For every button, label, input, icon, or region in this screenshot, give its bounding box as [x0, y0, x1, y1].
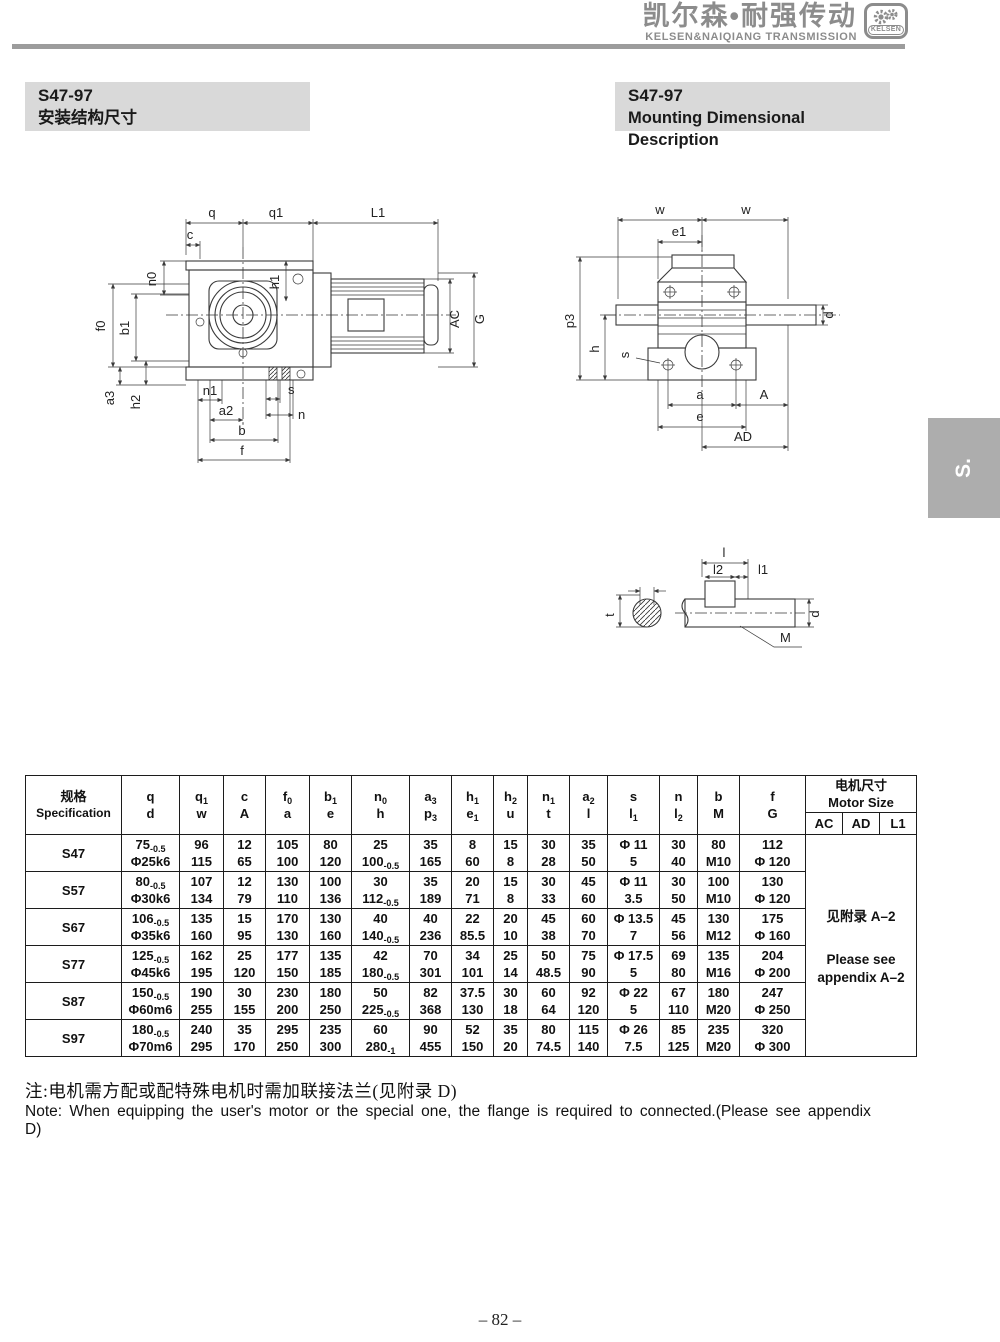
- cell-line: 125: [660, 1038, 697, 1055]
- cell-line: 130: [452, 1001, 493, 1018]
- cell-line: 150-0.5: [122, 984, 179, 1001]
- dim-label-a3: a3: [102, 391, 117, 405]
- column-header: n0h: [352, 776, 410, 835]
- cell-line: 150: [452, 1038, 493, 1055]
- cell-line: 35: [410, 836, 451, 853]
- cell-line: Φ 13.5: [608, 910, 659, 927]
- value-cell: 70301: [410, 946, 452, 983]
- value-cell: 295250: [266, 1020, 310, 1057]
- value-cell: 25100-0.5: [352, 835, 410, 872]
- cell-line: 60: [528, 984, 569, 1001]
- value-cell: 320Φ 300: [740, 1020, 806, 1057]
- cell-line: 50: [570, 853, 607, 870]
- cell-line: 35: [494, 1021, 527, 1038]
- cell-line: 115: [570, 1021, 607, 1038]
- value-cell: 105100: [266, 835, 310, 872]
- dim-label-l1: l1: [758, 562, 768, 577]
- cell-line: 92: [570, 984, 607, 1001]
- cell-line: 75: [570, 947, 607, 964]
- cell-line: 20: [452, 873, 493, 890]
- gear-train-icon: [869, 8, 903, 25]
- cell-line: 180-0.5: [352, 964, 409, 981]
- cell-line: 130: [266, 873, 309, 890]
- column-header: q1w: [180, 776, 224, 835]
- dim-label-d: d: [821, 311, 836, 318]
- dimension-table: 规格Specificationqdq1wcAf0ab1en0ha3p3h1e1h…: [25, 775, 917, 1057]
- cell-line: 95: [224, 927, 265, 944]
- cell-line: q: [122, 788, 179, 805]
- cell-line: 12: [224, 873, 265, 890]
- value-cell: 3550: [570, 835, 608, 872]
- note-cn: 注:电机需方配或配特殊电机时需加联接法兰(见附录 D): [25, 1078, 457, 1103]
- value-cell: 170130: [266, 909, 310, 946]
- cell-line: t: [528, 805, 569, 822]
- cell-line: Specification: [26, 805, 121, 822]
- value-cell: Φ 225: [608, 983, 660, 1020]
- value-cell: 247Φ 250: [740, 983, 806, 1020]
- dim-label-n0: n0: [144, 272, 159, 286]
- cell-line: 42: [352, 947, 409, 964]
- column-header: bM: [698, 776, 740, 835]
- cell-line: 70: [410, 947, 451, 964]
- dim-label-q: q: [208, 205, 215, 220]
- cell-line: M10: [698, 890, 739, 907]
- front-view-drawing: q q1 L1 c n0 h1 f0 b1 a3 h2 n1 a2 s n b …: [90, 195, 490, 485]
- motor-note-en: Please see appendix A–2: [815, 951, 907, 987]
- cell-line: f0: [266, 788, 309, 805]
- cell-line: Φ 160: [740, 927, 805, 944]
- value-cell: Φ 115: [608, 835, 660, 872]
- title-block-en: S47-97 Mounting Dimensional Description: [615, 82, 890, 131]
- cell-line: 33: [528, 890, 569, 907]
- value-cell: 180-0.5Φ70m6: [122, 1020, 180, 1057]
- value-cell: 34101: [452, 946, 494, 983]
- value-cell: 1279: [224, 872, 266, 909]
- dim-label-h: h: [587, 345, 602, 352]
- section-index-label: S.: [952, 458, 976, 478]
- value-cell: 35165: [410, 835, 452, 872]
- cell-line: Φ45k6: [122, 964, 179, 981]
- value-cell: 2285.5: [452, 909, 494, 946]
- cell-line: a: [266, 805, 309, 822]
- dim-label-p3: p3: [562, 314, 577, 328]
- cell-line: 112-0.5: [352, 890, 409, 907]
- cell-line: 30: [528, 873, 569, 890]
- cell-line: 162: [180, 947, 223, 964]
- cell-line: 80: [528, 1021, 569, 1038]
- cell-line: 100: [266, 853, 309, 870]
- cell-line: p3: [410, 805, 451, 822]
- cell-line: h: [352, 805, 409, 822]
- cell-line: 50: [352, 984, 409, 1001]
- value-cell: Φ 13.57: [608, 909, 660, 946]
- value-cell: 190255: [180, 983, 224, 1020]
- value-cell: 3040: [660, 835, 698, 872]
- cell-line: 136: [310, 890, 351, 907]
- column-header: n1t: [528, 776, 570, 835]
- value-cell: 100M10: [698, 872, 740, 909]
- cell-line: 64: [528, 1001, 569, 1018]
- value-cell: 130M12: [698, 909, 740, 946]
- column-header: qd: [122, 776, 180, 835]
- cell-line: 295: [266, 1021, 309, 1038]
- cell-line: 100: [698, 873, 739, 890]
- value-cell: 130110: [266, 872, 310, 909]
- cell-line: 15: [494, 873, 527, 890]
- cell-line: Φ 22: [608, 984, 659, 1001]
- cell-line: 135: [698, 947, 739, 964]
- cell-line: 250: [266, 1038, 309, 1055]
- cell-line: 180-0.5: [122, 1021, 179, 1038]
- cell-line: 160: [310, 927, 351, 944]
- column-header: a2l: [570, 776, 608, 835]
- dim-label-AD: AD: [734, 429, 752, 444]
- cell-line: 8: [452, 836, 493, 853]
- cell-line: 236: [410, 927, 451, 944]
- cell-line: 189: [410, 890, 451, 907]
- motor-note-cn: 见附录 A–2: [806, 905, 916, 925]
- cell-line: 71: [452, 890, 493, 907]
- motor-size-note-cell: 见附录 A–2Please see appendix A–2: [806, 835, 917, 1057]
- value-cell: 3520: [494, 1020, 528, 1057]
- value-cell: 107134: [180, 872, 224, 909]
- dim-label-l2: l2: [713, 562, 723, 577]
- dim-label-M: M: [780, 630, 791, 645]
- housing-outline: [616, 255, 816, 380]
- dim-label-d: d: [807, 610, 822, 617]
- value-cell: 1595: [224, 909, 266, 946]
- dim-label-b1: b1: [117, 321, 132, 335]
- cell-line: 8: [494, 890, 527, 907]
- cell-line: 320: [740, 1021, 805, 1038]
- cell-line: 28: [528, 853, 569, 870]
- cell-line: 5: [608, 1001, 659, 1018]
- cell-line: 368: [410, 1001, 451, 1018]
- cell-line: 70: [570, 927, 607, 944]
- column-header: fG: [740, 776, 806, 835]
- value-cell: 7590: [570, 946, 608, 983]
- cell-line: Φ 300: [740, 1038, 805, 1055]
- value-cell: 180M20: [698, 983, 740, 1020]
- cell-line: 130: [740, 873, 805, 890]
- cell-line: 25: [352, 836, 409, 853]
- value-cell: 240295: [180, 1020, 224, 1057]
- brand-name-cn: 凯尔森•耐强传动: [643, 3, 857, 30]
- cell-line: 130: [698, 910, 739, 927]
- dim-label-w-right: w: [740, 202, 751, 217]
- cell-line: Φ30k6: [122, 890, 179, 907]
- value-cell: Φ 17.55: [608, 946, 660, 983]
- value-cell: 6070: [570, 909, 608, 946]
- cell-line: 25: [494, 947, 527, 964]
- cell-line: 235: [310, 1021, 351, 1038]
- cell-line: M20: [698, 1001, 739, 1018]
- column-header: h1e1: [452, 776, 494, 835]
- cell-line: 5: [608, 853, 659, 870]
- cell-line: n: [660, 788, 697, 805]
- dim-label-f0: f0: [93, 321, 108, 332]
- dim-label-A: A: [760, 387, 769, 402]
- cell-line: q1: [180, 788, 223, 805]
- cell-line: 130: [310, 910, 351, 927]
- cell-line: 30: [494, 984, 527, 1001]
- cell-line: 35: [410, 873, 451, 890]
- cell-line: A: [224, 805, 265, 822]
- cell-line: 120: [310, 853, 351, 870]
- value-cell: 3028: [528, 835, 570, 872]
- cell-line: 15: [494, 836, 527, 853]
- cell-line: 140-0.5: [352, 927, 409, 944]
- value-cell: 230200: [266, 983, 310, 1020]
- cell-line: 125-0.5: [122, 947, 179, 964]
- dim-label-b: b: [238, 423, 245, 438]
- value-cell: 204Φ 200: [740, 946, 806, 983]
- cell-line: Φ35k6: [122, 927, 179, 944]
- cell-line: Φ70m6: [122, 1038, 179, 1055]
- motor-subcolumn-header: AD: [843, 813, 880, 835]
- brand-name-en: KELSEN&NAIQIANG TRANSMISSION: [643, 31, 857, 43]
- cell-line: 190: [180, 984, 223, 1001]
- side-view-drawing: w w e1 p3 h s d a A e AD: [560, 195, 890, 460]
- cell-line: 75-0.5: [122, 836, 179, 853]
- value-cell: 25120: [224, 946, 266, 983]
- cell-line: M20: [698, 1038, 739, 1055]
- cell-line: Φ60m6: [122, 1001, 179, 1018]
- cell-line: 130: [266, 927, 309, 944]
- cell-line: l1: [608, 805, 659, 822]
- motor-size-header: 电机尺寸Motor Size: [806, 776, 917, 813]
- value-cell: 150-0.5Φ60m6: [122, 983, 180, 1020]
- cell-line: 40: [660, 853, 697, 870]
- cell-line: 80: [698, 836, 739, 853]
- cell-line: 280-1: [352, 1038, 409, 1055]
- cell-line: 106-0.5: [122, 910, 179, 927]
- section-title-cn: 安装结构尺寸: [38, 107, 310, 129]
- cell-line: Φ25k6: [122, 853, 179, 870]
- cell-line: 45: [570, 873, 607, 890]
- cell-line: 255: [180, 1001, 223, 1018]
- value-cell: 130Φ 120: [740, 872, 806, 909]
- cell-line: 110: [660, 1001, 697, 1018]
- cell-line: 60: [570, 890, 607, 907]
- cell-line: 52: [452, 1021, 493, 1038]
- cell-line: 200: [266, 1001, 309, 1018]
- cell-line: 135: [310, 947, 351, 964]
- cell-line: 12: [224, 836, 265, 853]
- dim-label-q1: q1: [269, 205, 283, 220]
- column-header: b1e: [310, 776, 352, 835]
- shaft-cross-section: [616, 587, 666, 627]
- cell-line: 35: [570, 836, 607, 853]
- value-cell: 158: [494, 835, 528, 872]
- cell-line: 295: [180, 1038, 223, 1055]
- cell-line: 30: [528, 836, 569, 853]
- cell-line: 112: [740, 836, 805, 853]
- cell-line: f: [740, 788, 805, 805]
- cell-line: 301: [410, 964, 451, 981]
- cell-line: 150: [266, 964, 309, 981]
- dim-label-t: t: [602, 613, 617, 617]
- cell-line: Φ 11: [608, 873, 659, 890]
- cell-line: 40: [352, 910, 409, 927]
- cell-line: M: [698, 805, 739, 822]
- cell-line: G: [740, 805, 805, 822]
- model-range: S47-97: [38, 85, 310, 107]
- cell-line: 235: [698, 1021, 739, 1038]
- shaft-key-detail-drawing: t l l2 l1 d M: [590, 525, 850, 655]
- cell-line: b1: [310, 788, 351, 805]
- dim-label-a: a: [696, 387, 704, 402]
- cell-line: 5: [608, 964, 659, 981]
- cell-line: 85: [660, 1021, 697, 1038]
- value-cell: 125-0.5Φ45k6: [122, 946, 180, 983]
- section-index-tab: S.: [928, 418, 1000, 518]
- centerlines: [604, 235, 840, 395]
- value-cell: Φ 113.5: [608, 872, 660, 909]
- cell-line: n1: [528, 788, 569, 805]
- cell-line: 120: [224, 964, 265, 981]
- cell-line: 134: [180, 890, 223, 907]
- value-cell: 50225-0.5: [352, 983, 410, 1020]
- cell-line: 规格: [26, 788, 121, 805]
- cell-line: h2: [494, 788, 527, 805]
- note-en: Note: When equipping the user's motor or…: [25, 1103, 893, 1139]
- table-row: S67106-0.5Φ35k61351601595170130130160401…: [26, 909, 917, 946]
- table-row: S4775-0.5Φ25k69611512651051008012025100-…: [26, 835, 917, 872]
- cell-line: 电机尺寸: [806, 777, 916, 794]
- cell-line: 115: [180, 853, 223, 870]
- cell-line: 7: [608, 927, 659, 944]
- cell-line: 45: [660, 910, 697, 927]
- column-header: f0a: [266, 776, 310, 835]
- cell-line: 50: [528, 947, 569, 964]
- value-cell: 5048.5: [528, 946, 570, 983]
- cell-line: s: [608, 788, 659, 805]
- cell-line: 185: [310, 964, 351, 981]
- value-cell: 3033: [528, 872, 570, 909]
- dim-label-s: s: [288, 382, 295, 397]
- cell-line: 100: [310, 873, 351, 890]
- cell-line: a3: [410, 788, 451, 805]
- cell-line: e: [310, 805, 351, 822]
- cell-line: 14: [494, 964, 527, 981]
- cell-line: 135: [180, 910, 223, 927]
- value-cell: 158: [494, 872, 528, 909]
- cell-line: 80: [310, 836, 351, 853]
- spec-cell: S67: [26, 909, 122, 946]
- brand-logo: KELSEN: [864, 3, 908, 39]
- section-title-en: Mounting Dimensional Description: [628, 107, 890, 151]
- cell-line: 250: [310, 1001, 351, 1018]
- cell-line: 10: [494, 927, 527, 944]
- cell-line: Φ 17.5: [608, 947, 659, 964]
- cell-line: 20: [494, 910, 527, 927]
- value-cell: 90455: [410, 1020, 452, 1057]
- cell-line: 90: [410, 1021, 451, 1038]
- value-cell: 40236: [410, 909, 452, 946]
- value-cell: 1265: [224, 835, 266, 872]
- cell-line: 105: [266, 836, 309, 853]
- cell-line: Φ 250: [740, 1001, 805, 1018]
- shaft-side-view: [675, 559, 814, 647]
- dim-label-c: c: [187, 227, 194, 242]
- cell-line: 247: [740, 984, 805, 1001]
- value-cell: 235M20: [698, 1020, 740, 1057]
- dim-label-G: G: [472, 314, 487, 324]
- cell-line: 18: [494, 1001, 527, 1018]
- table-header: 规格Specificationqdq1wcAf0ab1en0ha3p3h1e1h…: [26, 776, 917, 835]
- logo-wordmark: KELSEN: [868, 25, 904, 35]
- cell-line: 180: [310, 984, 351, 1001]
- table-row: S5780-0.5Φ30k610713412791301101001363011…: [26, 872, 917, 909]
- cell-line: M16: [698, 964, 739, 981]
- cell-line: a2: [570, 788, 607, 805]
- cell-line: 8: [494, 853, 527, 870]
- cell-line: 96: [180, 836, 223, 853]
- value-cell: 75-0.5Φ25k6: [122, 835, 180, 872]
- value-cell: 162195: [180, 946, 224, 983]
- cell-line: 455: [410, 1038, 451, 1055]
- brand-text: 凯尔森•耐强传动 KELSEN&NAIQIANG TRANSMISSION: [643, 3, 857, 43]
- gearbox-outline: [186, 261, 313, 380]
- dim-label-L1: L1: [371, 205, 385, 220]
- value-cell: 67110: [660, 983, 698, 1020]
- value-cell: Φ 267.5: [608, 1020, 660, 1057]
- table-row: S97180-0.5Φ70m62402953517029525023530060…: [26, 1020, 917, 1057]
- cell-line: Φ 120: [740, 890, 805, 907]
- value-cell: 4556: [660, 909, 698, 946]
- value-cell: 4560: [570, 872, 608, 909]
- spec-cell: S47: [26, 835, 122, 872]
- value-cell: 42180-0.5: [352, 946, 410, 983]
- cell-line: 30: [660, 836, 697, 853]
- column-header: a3p3: [410, 776, 452, 835]
- cell-line: 65: [224, 853, 265, 870]
- dim-label-f: f: [240, 443, 244, 458]
- spec-cell: S57: [26, 872, 122, 909]
- cell-line: 155: [224, 1001, 265, 1018]
- dim-label-a2: a2: [219, 403, 233, 418]
- value-cell: 6064: [528, 983, 570, 1020]
- cell-line: Φ 26: [608, 1021, 659, 1038]
- cell-line: Φ 11: [608, 836, 659, 853]
- value-cell: 8074.5: [528, 1020, 570, 1057]
- value-cell: 235300: [310, 1020, 352, 1057]
- cell-line: 22: [452, 910, 493, 927]
- catalog-page: 凯尔森•耐强传动 KELSEN&NAIQIANG TRANSMISSION KE…: [0, 0, 1000, 1342]
- cell-line: Motor Size: [806, 794, 916, 811]
- cell-line: e1: [452, 805, 493, 822]
- cell-line: Φ 200: [740, 964, 805, 981]
- cell-line: 80-0.5: [122, 873, 179, 890]
- value-cell: 52150: [452, 1020, 494, 1057]
- cell-line: 170: [224, 1038, 265, 1055]
- value-cell: 100136: [310, 872, 352, 909]
- value-cell: 80120: [310, 835, 352, 872]
- cell-line: 30: [352, 873, 409, 890]
- value-cell: 177150: [266, 946, 310, 983]
- column-header: nl2: [660, 776, 698, 835]
- column-header: sl1: [608, 776, 660, 835]
- value-cell: 135185: [310, 946, 352, 983]
- cell-line: 160: [180, 927, 223, 944]
- cell-line: M12: [698, 927, 739, 944]
- cell-line: 50: [660, 890, 697, 907]
- cell-line: 80: [660, 964, 697, 981]
- value-cell: 92120: [570, 983, 608, 1020]
- value-cell: 37.5130: [452, 983, 494, 1020]
- table-row: S87150-0.5Φ60m61902553015523020018025050…: [26, 983, 917, 1020]
